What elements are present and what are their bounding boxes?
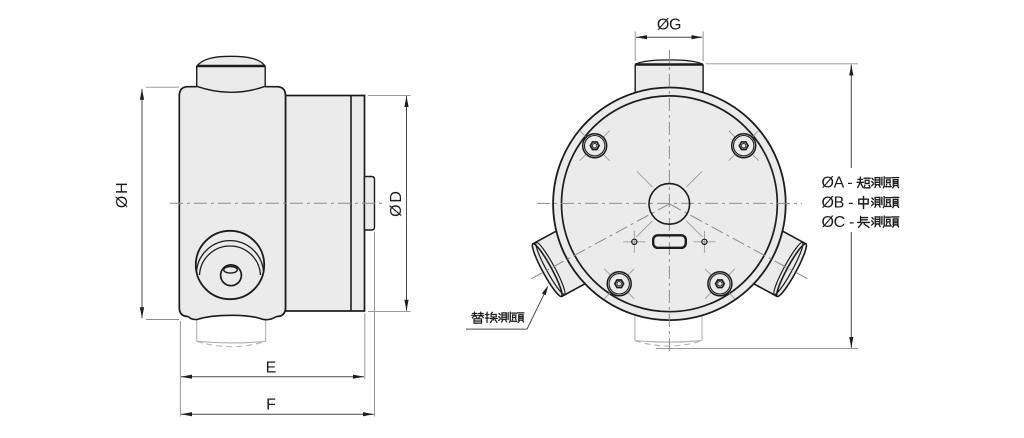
svg-text:E: E (266, 359, 277, 376)
svg-text:ØA -: ØA - (822, 175, 853, 192)
svg-text:ØG: ØG (657, 17, 681, 34)
svg-text:ØD: ØD (388, 189, 405, 217)
svg-text:F: F (266, 397, 276, 414)
svg-text:ØC -: ØC - (822, 214, 855, 231)
svg-text:ØB -: ØB - (822, 195, 854, 212)
svg-text:ØH: ØH (114, 180, 131, 208)
